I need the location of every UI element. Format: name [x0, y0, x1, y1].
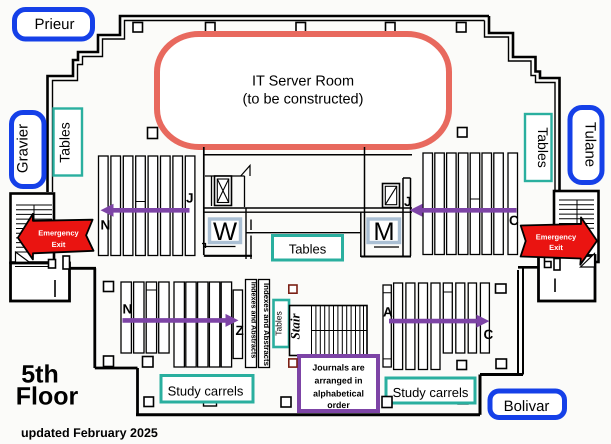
svg-text:Emergency: Emergency: [536, 233, 577, 242]
svg-text:M: M: [373, 218, 394, 246]
svg-text:C: C: [509, 213, 519, 228]
svg-text:Exit: Exit: [52, 240, 66, 249]
svg-text:Study carrels: Study carrels: [168, 383, 244, 398]
svg-text:alphabetical: alphabetical: [313, 389, 364, 399]
svg-text:Study carrels: Study carrels: [393, 385, 469, 400]
svg-text:C: C: [484, 327, 494, 342]
svg-text:N: N: [101, 217, 111, 232]
svg-text:Bolivar: Bolivar: [504, 398, 550, 415]
svg-text:J: J: [404, 194, 412, 209]
svg-text:Gravier: Gravier: [15, 124, 32, 173]
svg-text:J: J: [186, 191, 194, 206]
svg-text:Floor: Floor: [16, 382, 79, 410]
svg-text:(to be constructed): (to be constructed): [243, 92, 364, 108]
svg-text:Emergency: Emergency: [38, 228, 79, 237]
svg-text:A: A: [383, 305, 393, 320]
svg-text:Indexes and Abstracts: Indexes and Abstracts: [262, 283, 271, 367]
svg-text:order: order: [327, 400, 350, 410]
svg-text:Indexes and Abstracts: Indexes and Abstracts: [249, 282, 258, 358]
svg-text:IT Server Room: IT Server Room: [252, 74, 354, 90]
svg-text:Tables: Tables: [274, 311, 284, 336]
svg-text:arranged in: arranged in: [315, 376, 363, 386]
svg-text:Tulane: Tulane: [582, 122, 599, 167]
svg-text:N: N: [123, 302, 133, 317]
svg-text:Tables: Tables: [535, 127, 551, 167]
svg-text:updated February 2025: updated February 2025: [21, 426, 158, 440]
svg-text:Tables: Tables: [57, 122, 73, 162]
svg-text:Exit: Exit: [549, 243, 563, 252]
svg-text:Z: Z: [236, 323, 244, 338]
svg-text:Stair: Stair: [288, 313, 303, 340]
svg-text:W: W: [213, 218, 237, 246]
svg-text:Journals are: Journals are: [312, 363, 364, 373]
svg-text:Prieur: Prieur: [34, 16, 74, 33]
svg-text:Tables: Tables: [289, 241, 327, 256]
